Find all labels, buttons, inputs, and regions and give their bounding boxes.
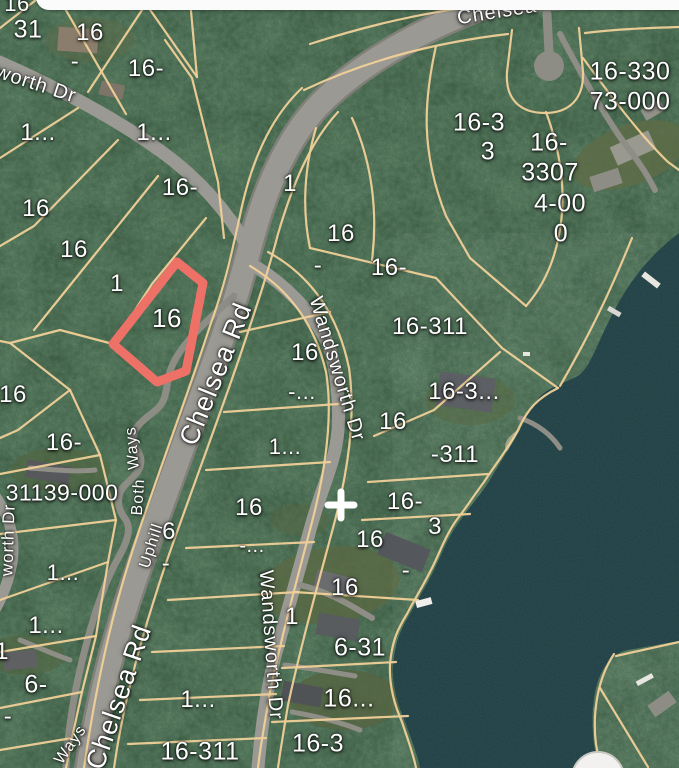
bottom-sheet-top-edge[interactable] xyxy=(36,0,679,10)
cul-de-sac-bulb xyxy=(534,51,564,81)
cul-de-sac-stub xyxy=(547,14,549,52)
satellite-map xyxy=(0,0,679,768)
map-canvas[interactable]: 163116-16-1...1...16-1616111616-16-16-33… xyxy=(0,0,679,768)
boat xyxy=(523,352,530,356)
